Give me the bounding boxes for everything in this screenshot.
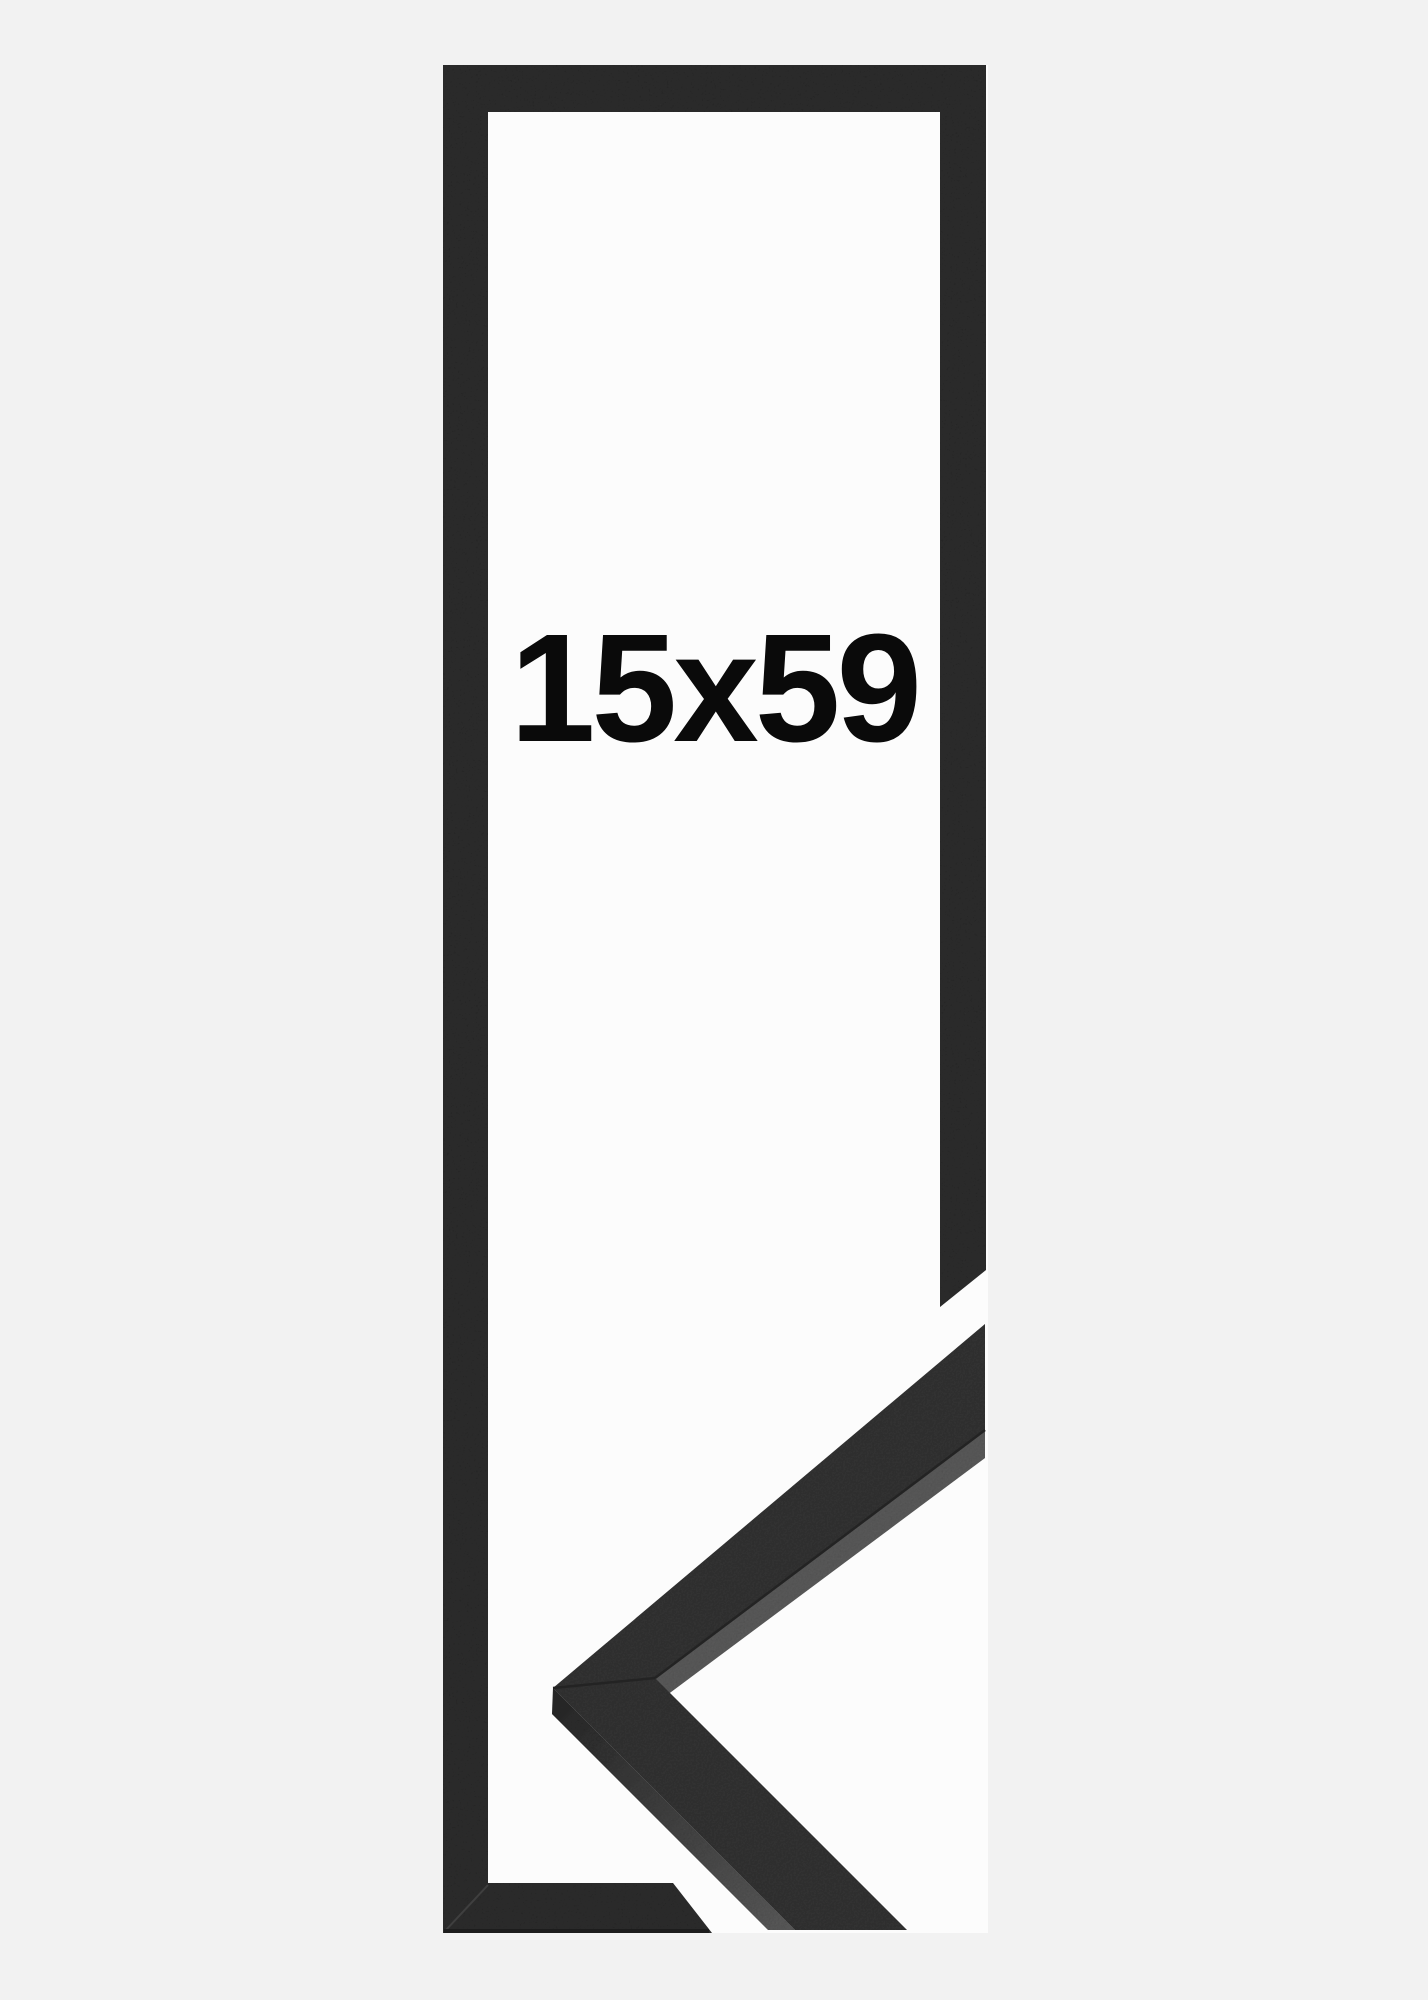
frame-product-photo: 15x59 [0,0,1428,2000]
product-photo-frame-15x59: 15x59 [0,0,1428,2000]
frame-top-bar [443,65,986,112]
frame-right-bar [940,65,986,1307]
size-label: 15x59 [510,602,918,774]
frame-left-bar [443,65,488,1933]
